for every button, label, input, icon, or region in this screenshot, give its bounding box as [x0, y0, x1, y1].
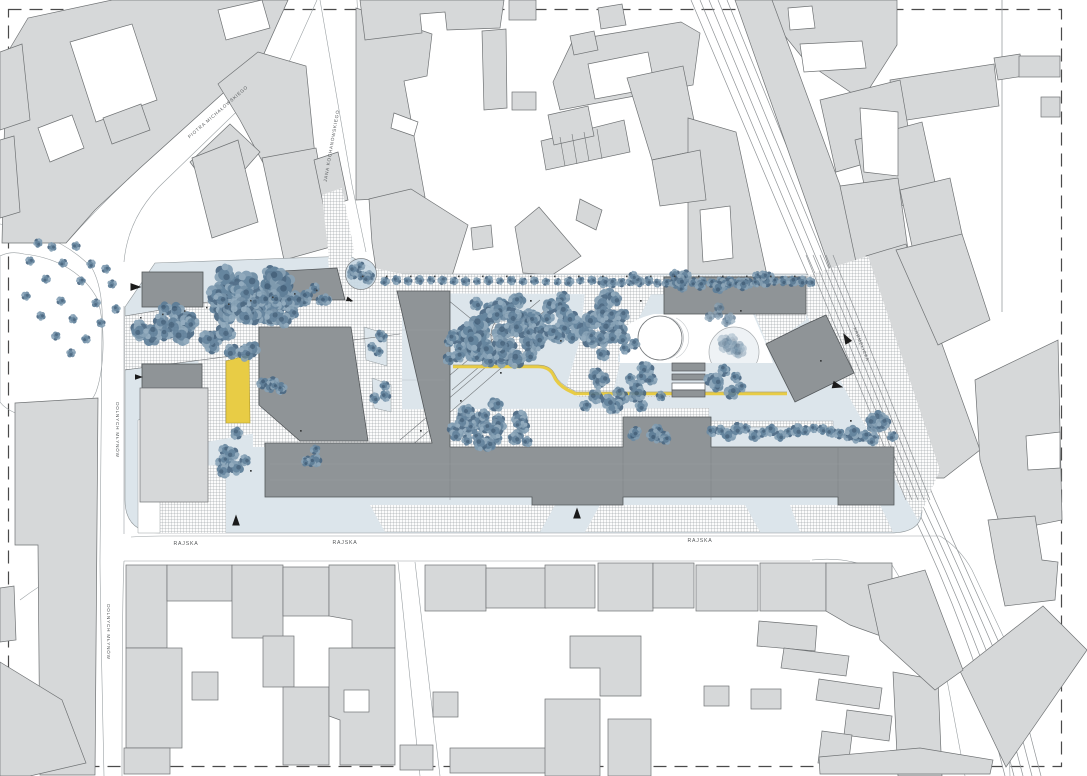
svg-text:RAJSKA: RAJSKA [688, 538, 713, 544]
svg-text:RAJSKA: RAJSKA [174, 541, 199, 547]
svg-text:DOLNYCH MŁYNÓW: DOLNYCH MŁYNÓW [115, 402, 121, 458]
svg-text:DOLNYCH MŁYNÓW: DOLNYCH MŁYNÓW [106, 604, 112, 660]
svg-text:RAJSKA: RAJSKA [333, 540, 358, 546]
